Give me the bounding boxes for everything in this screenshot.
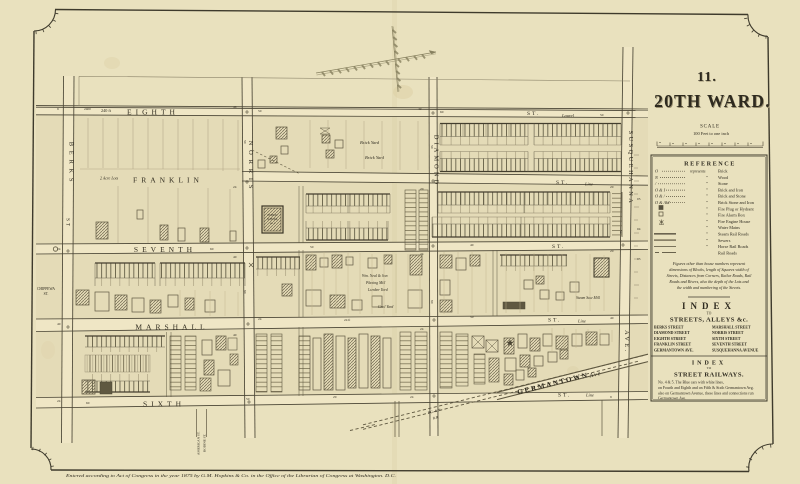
svg-text:BERKS: BERKS (68, 142, 75, 186)
svg-text:Brick and Stone: Brick and Stone (718, 194, 746, 199)
svg-text:”: ” (706, 219, 708, 224)
svg-text:Line: Line (577, 319, 586, 324)
svg-text:Fire Alarm Box: Fire Alarm Box (718, 213, 746, 218)
svg-text:No. 5: No. 5 (270, 222, 276, 225)
svg-text:9: 9 (610, 395, 612, 399)
svg-text:”: ” (706, 206, 708, 211)
svg-text:Line: Line (585, 393, 594, 398)
svg-text:24 ft: 24 ft (344, 318, 350, 322)
svg-text:Line: Line (584, 182, 593, 187)
svg-text:BODINE ST.: BODINE ST. (203, 433, 207, 452)
svg-text:EIGHTH STREET: EIGHTH STREET (654, 337, 687, 341)
svg-text:05: 05 (637, 197, 641, 201)
svg-text:O & I: O & I (655, 187, 666, 192)
svg-text:NORRIS: NORRIS (247, 141, 254, 194)
svg-text:40: 40 (470, 243, 474, 247)
svg-text:50: 50 (470, 315, 474, 319)
svg-text:40: 40 (233, 105, 237, 109)
svg-text:Steam Rail Roads: Steam Rail Roads (718, 232, 749, 237)
svg-text:MARSHALL STREET: MARSHALL STREET (712, 326, 751, 330)
svg-text:SUSQUEHANNA: SUSQUEHANNA (627, 131, 634, 206)
svg-text:ST.: ST. (527, 111, 540, 117)
svg-text:20: 20 (610, 249, 614, 253)
svg-text:ST: ST (65, 218, 70, 228)
svg-text:SEVENTH STREET: SEVENTH STREET (712, 343, 747, 347)
svg-text:60: 60 (440, 110, 444, 114)
svg-text:AVE.: AVE. (623, 330, 630, 354)
svg-text:40: 40 (233, 333, 237, 337)
svg-text:SIXTH: SIXTH (143, 400, 185, 409)
svg-text:ST.: ST. (556, 180, 569, 186)
svg-text:FRANKLIN: FRANKLIN (133, 176, 203, 185)
svg-text:Rail Roads: Rail Roads (718, 250, 737, 255)
svg-text:24: 24 (420, 252, 424, 256)
svg-text:the width and numbering of the: the width and numbering of the Streets. (677, 285, 741, 290)
svg-text:Figures other than house numbe: Figures other than house numbers represe… (672, 261, 746, 266)
svg-text:DIAMOND STREET: DIAMOND STREET (654, 331, 690, 335)
svg-text:”: ” (706, 175, 708, 180)
svg-text:9: 9 (57, 107, 59, 111)
svg-text:40: 40 (233, 255, 237, 259)
svg-text:20: 20 (333, 395, 337, 399)
svg-text:Germantown Ave.: Germantown Ave. (658, 397, 686, 401)
svg-text:24: 24 (233, 185, 237, 189)
svg-text:on Fourth and Eighth and on Fi: on Fourth and Eighth and on Fifth & Sixt… (658, 386, 754, 390)
svg-text:ST.: ST. (548, 318, 561, 324)
svg-text:04: 04 (637, 227, 641, 231)
svg-text:Fire Plug or Hydrant: Fire Plug or Hydrant (718, 206, 754, 211)
svg-text:Stone: Stone (718, 181, 728, 186)
svg-text:40: 40 (418, 107, 422, 111)
svg-text:represents: represents (690, 170, 706, 174)
svg-text:”: ” (706, 225, 708, 230)
svg-text:60: 60 (210, 247, 214, 251)
svg-text:O & /: O & / (655, 194, 666, 199)
svg-text:100 Feet to one inch: 100 Feet to one inch (693, 131, 730, 136)
svg-text:Sewers: Sewers (718, 238, 731, 243)
svg-text:24: 24 (410, 395, 414, 399)
svg-text:50: 50 (310, 245, 314, 249)
svg-text:NORRIS STREET: NORRIS STREET (712, 331, 744, 335)
svg-text:60: 60 (430, 300, 434, 304)
svg-text:EIGHTH: EIGHTH (127, 108, 179, 117)
svg-text:ST.: ST. (44, 292, 49, 296)
svg-text:Brick Stone and Iron: Brick Stone and Iron (718, 200, 755, 205)
svg-text:SEVENTH: SEVENTH (134, 245, 196, 254)
svg-text:40: 40 (57, 322, 61, 326)
svg-text:Fire Engine House: Fire Engine House (718, 219, 750, 224)
svg-text:”: ” (706, 181, 708, 186)
svg-text:ST.: ST. (552, 244, 565, 250)
svg-text:SUSQUEHANNA AVENUE: SUSQUEHANNA AVENUE (712, 348, 759, 352)
svg-text:REFERENCE: REFERENCE (684, 161, 736, 168)
svg-text:PUBLIC: PUBLIC (268, 214, 278, 217)
svg-text:24: 24 (57, 399, 61, 403)
svg-text:50: 50 (243, 140, 247, 144)
svg-text:”: ” (706, 187, 708, 192)
svg-text:INDEX: INDEX (682, 301, 736, 311)
svg-text:50: 50 (600, 113, 604, 117)
svg-text:24: 24 (57, 247, 61, 251)
svg-text:STREET RAILWAYS.: STREET RAILWAYS. (674, 372, 744, 379)
svg-text:50: 50 (258, 109, 262, 113)
svg-text:TO: TO (707, 366, 712, 370)
svg-text:50: 50 (619, 230, 623, 234)
svg-text:60: 60 (86, 401, 90, 405)
svg-text:”: ” (706, 213, 708, 218)
svg-text:20: 20 (420, 187, 424, 191)
svg-text:50: 50 (246, 397, 250, 401)
svg-text:240 ft: 240 ft (101, 108, 112, 113)
svg-text:Brick: Brick (718, 169, 728, 174)
svg-text:DIAMOND: DIAMOND (433, 135, 440, 187)
svg-text:Steam Saw Mill: Steam Saw Mill (576, 296, 600, 300)
svg-text:60: 60 (243, 290, 247, 294)
svg-text:CHIPPEWA: CHIPPEWA (37, 287, 55, 291)
svg-text:Lumber Yard: Lumber Yard (367, 288, 388, 292)
svg-text:Coal Yard: Coal Yard (378, 305, 393, 309)
svg-text:20: 20 (610, 185, 614, 189)
svg-text:11.: 11. (697, 70, 717, 85)
svg-text:O: O (655, 169, 658, 174)
svg-text:BERKS STREET: BERKS STREET (654, 326, 684, 330)
svg-text:Horse Rail Roads: Horse Rail Roads (718, 244, 749, 249)
svg-text:Planing Mill: Planing Mill (365, 281, 385, 285)
svg-text:”: ” (706, 238, 708, 243)
svg-text:2400: 2400 (84, 107, 91, 111)
svg-text:24: 24 (420, 327, 424, 331)
svg-text:STREETS, ALLEYS &c.: STREETS, ALLEYS &c. (670, 317, 748, 324)
svg-text:40: 40 (610, 316, 614, 320)
svg-text:”: ” (706, 232, 708, 237)
svg-text:SCHOOL: SCHOOL (267, 218, 278, 221)
svg-text:TO: TO (707, 312, 712, 316)
svg-text:Water Mains: Water Mains (718, 225, 740, 230)
svg-text:FRANKLIN STREET: FRANKLIN STREET (654, 343, 691, 347)
svg-text:GERMANTOWN AVE.: GERMANTOWN AVE. (654, 348, 693, 352)
svg-text:Wood: Wood (718, 175, 729, 180)
svg-text:SCALE: SCALE (700, 125, 720, 130)
svg-text:O & /&I: O & /&I (655, 200, 670, 205)
svg-text:2 Acre Lots: 2 Acre Lots (100, 176, 119, 181)
svg-text:AMERICAN ST.: AMERICAN ST. (197, 431, 201, 455)
svg-text:SIXTH STREET: SIXTH STREET (712, 337, 741, 341)
svg-text:Laurel: Laurel (561, 113, 575, 118)
svg-text:MARSHALL: MARSHALL (135, 323, 208, 332)
svg-text:Brick Yard: Brick Yard (360, 140, 380, 145)
svg-text:24: 24 (258, 317, 262, 321)
svg-text:”: ” (706, 194, 708, 199)
svg-text:ST.: ST. (558, 393, 571, 399)
svg-text:Entered according to Act of Co: Entered according to Act of Congress in … (65, 473, 396, 478)
svg-text:”: ” (706, 244, 708, 249)
svg-text:20TH WARD.: 20TH WARD. (654, 91, 771, 111)
svg-text:”: ” (706, 200, 708, 205)
svg-text:Brick and Iron: Brick and Iron (718, 187, 744, 192)
